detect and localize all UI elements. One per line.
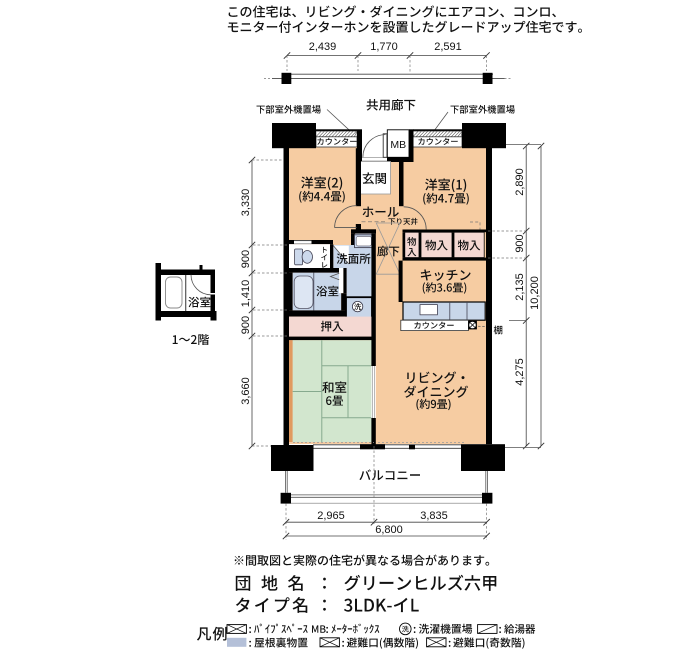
svg-text:1,410: 1,410 [240, 280, 252, 308]
svg-text:900: 900 [240, 250, 252, 268]
svg-text:2,135: 2,135 [514, 273, 526, 301]
svg-text:1,770: 1,770 [370, 41, 398, 53]
svg-text:3,660: 3,660 [240, 377, 252, 405]
svg-text:6,800: 6,800 [375, 524, 403, 536]
svg-text:3,330: 3,330 [240, 189, 252, 217]
svg-text:MB: MB [390, 139, 406, 151]
svg-text:900: 900 [514, 234, 526, 252]
svg-text:2,591: 2,591 [434, 41, 462, 53]
svg-text:4,275: 4,275 [514, 358, 526, 386]
svg-text:2,965: 2,965 [317, 510, 345, 522]
svg-text:2,439: 2,439 [309, 41, 337, 53]
svg-text:3,835: 3,835 [420, 510, 448, 522]
svg-text:2,890: 2,890 [514, 168, 526, 196]
svg-text:900: 900 [240, 316, 252, 334]
svg-text:10,200: 10,200 [529, 276, 541, 310]
